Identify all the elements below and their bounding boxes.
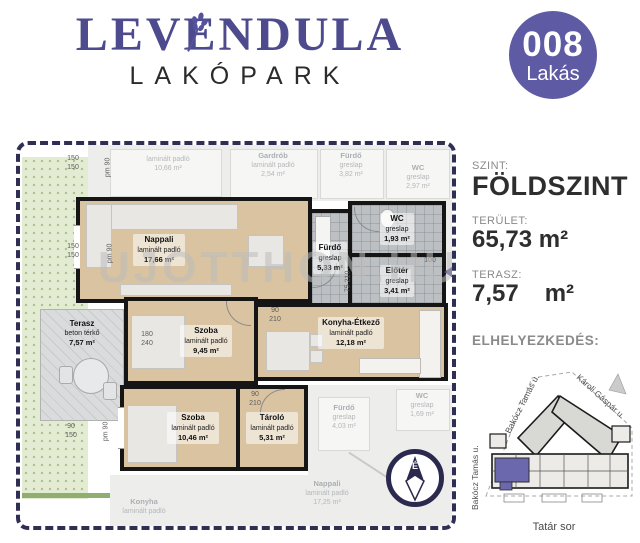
location-label: ELHELYEZKEDÉS:	[472, 333, 632, 348]
room-label: WC greslap 1,93 m²	[380, 213, 414, 244]
badge-number: 008	[522, 27, 583, 62]
kitchen-counter-shape	[419, 310, 441, 378]
location-map: Bakócz Tamás u. Károli Gáspár u. Bakócz …	[470, 368, 638, 520]
dim-label: 90210	[264, 307, 286, 325]
dining-table-shape	[266, 331, 310, 371]
dim-label: 90210	[244, 391, 266, 409]
room-label: Fürdő greslap 5,33 m²	[313, 242, 347, 273]
neighbor-label: laminált padló 10,66 m²	[128, 155, 208, 173]
terrace-value: 7,57m²	[472, 281, 632, 307]
neighbor-label: Konyha laminált padló	[112, 497, 176, 516]
room-label: Nappali laminált padló 17,66 m²	[133, 234, 184, 265]
lavender-sprig-icon	[182, 10, 212, 54]
compass-icon: É	[386, 449, 444, 507]
logo-title: LEVENDULA	[30, 10, 450, 60]
area-label: TERÜLET:	[472, 215, 632, 227]
dim-label: 100	[418, 257, 442, 266]
neighbor-label: WC greslap 1,69 m²	[398, 391, 446, 419]
neighbor-label: Nappali laminált padló 17,25 m²	[282, 479, 372, 507]
terrace-chair-shape	[103, 382, 117, 400]
chair-shape	[310, 350, 323, 363]
room-label: Előtér greslap 3,41 m²	[380, 265, 414, 296]
room-label: Tároló laminált padló 5,31 m²	[246, 412, 297, 443]
apartment-badge: 008 Lakás	[509, 11, 597, 99]
room-label: Szoba laminált padló 10,46 m²	[167, 412, 218, 443]
neighbor-label: Fürdő greslap 3,82 m²	[324, 151, 378, 179]
room-label: Konyha-Étkező laminált padló 12,18 m²	[318, 317, 384, 348]
info-panel: SZINT: FÖLDSZINT TERÜLET: 65,73 m² TERAS…	[472, 160, 632, 348]
dim-label: 90150	[60, 423, 82, 441]
terrace-chair-shape	[59, 366, 73, 384]
window-marker	[118, 407, 124, 449]
floorplan: laminált padló 10,66 m² Gardrób laminált…	[16, 141, 456, 530]
dim-label: 150150	[62, 155, 84, 173]
floor-value: FÖLDSZINT	[472, 172, 632, 202]
dim-label: 180240	[136, 331, 158, 349]
neighbor-label: Fürdő greslap 4,03 m²	[320, 403, 368, 431]
badge-label: Lakás	[526, 64, 579, 84]
sideboard-shape	[120, 284, 232, 296]
dim-label: 75 210	[345, 264, 354, 298]
dim-label: pm 90	[107, 238, 116, 268]
logo-subtitle: LAKÓPARK	[30, 62, 450, 91]
page: LEVENDULA LAKÓPARK 008 Lakás laminá	[0, 0, 640, 543]
map-caption: Tatár sor	[470, 521, 638, 533]
room-label: Terasz beton térkő 7,57 m²	[41, 318, 123, 349]
room-szoba-2: Szoba laminált padló 10,46 m²	[120, 385, 240, 471]
neighbor-label: WC greslap 2,97 m²	[392, 163, 444, 191]
neighbor-label: Gardrób laminált padló 2,54 m²	[234, 151, 312, 179]
table-shape	[248, 235, 284, 267]
dim-label: pm 90	[105, 152, 114, 182]
dim-label: 150150	[62, 243, 84, 261]
kitchen-counter-shape	[359, 358, 421, 374]
map-highlight-unit	[495, 458, 529, 482]
street-label: Bakócz Tamás u.	[470, 445, 480, 510]
logo: LEVENDULA LAKÓPARK	[30, 10, 450, 91]
dim-label: pm 90	[103, 416, 112, 446]
entrance-arrow-icon	[444, 261, 456, 283]
map-compass-icon	[609, 374, 626, 394]
area-value: 65,73 m²	[472, 227, 632, 253]
compass-north-label: É	[412, 461, 418, 471]
room-label: Szoba laminált padló 9,45 m²	[180, 325, 231, 356]
room-terasz: Terasz beton térkő 7,57 m²	[40, 309, 124, 421]
